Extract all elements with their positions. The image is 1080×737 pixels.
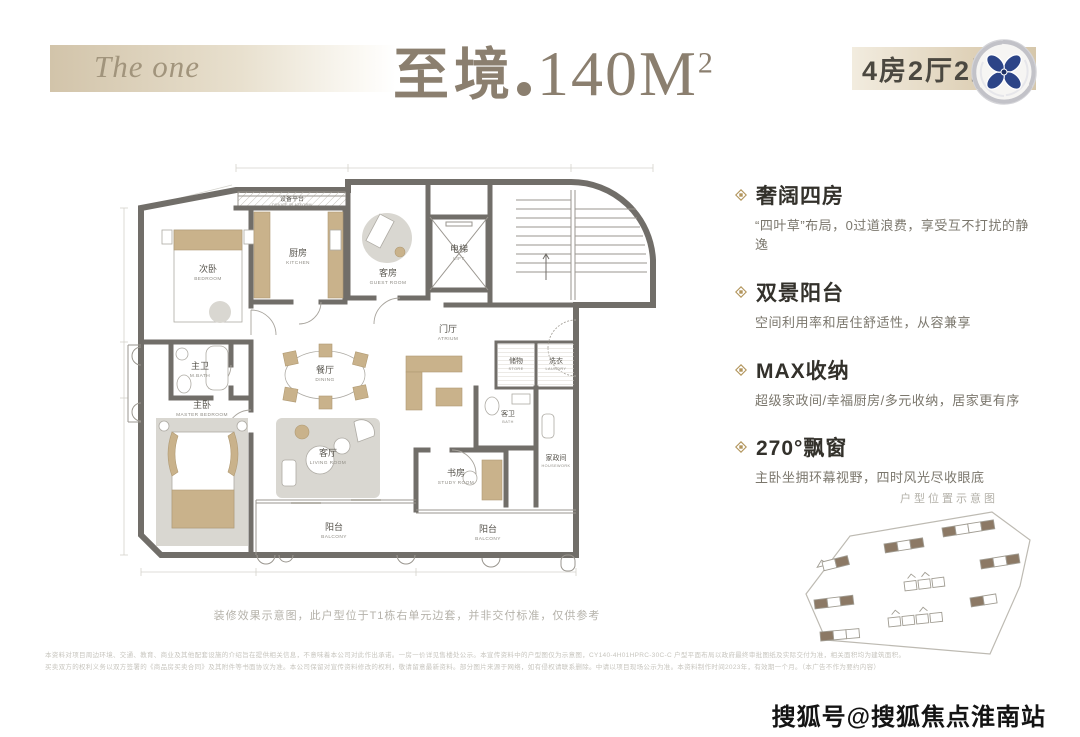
seal-dot-icon	[517, 82, 531, 96]
title-area-number: 140M	[537, 38, 698, 109]
room-label-en: DEVICE PLATFORM	[272, 203, 312, 207]
site-plan: 户型位置示意图	[792, 488, 1044, 660]
room-label: 客厅	[319, 447, 337, 458]
room-label-en: DINING	[315, 377, 334, 383]
diamond-bullet-icon	[735, 188, 747, 206]
page-title: 至境 140M2	[393, 24, 713, 104]
title-cn: 至境	[393, 48, 515, 104]
room-label-en: HOUSEWORK	[542, 464, 571, 468]
room-label: 家政间	[546, 453, 567, 462]
disclaimer-line-1: 本资料对项目周边环境、交通、教育、商业及其他配套设施的介绍旨在提供相关信息，不意…	[45, 650, 1041, 662]
feature-desc: 主卧坐拥环幕视野，四时风光尽收眼底	[755, 469, 1041, 488]
brand-logotype: The one	[94, 49, 200, 85]
room-label: 厨房	[289, 247, 307, 258]
feature-list: 奢阔四房 “四叶草”布局，0过道浪费，享受互不打扰的静逸 双景阳台 空间利用率和…	[735, 184, 1041, 514]
room-label: 电梯	[450, 243, 468, 254]
room-label: 阳台	[479, 523, 497, 534]
feature-title: 270°飘窗	[756, 436, 847, 462]
room-label: 阳台	[325, 521, 343, 532]
room-label-en: STUDY ROOM	[438, 480, 474, 486]
feature-desc: “四叶草”布局，0过道浪费，享受互不打扰的静逸	[755, 217, 1041, 255]
brand-banner: The one	[50, 45, 396, 92]
room-label-en: GUEST ROOM	[370, 280, 407, 286]
diamond-bullet-icon	[735, 440, 747, 458]
feature-title: 双景阳台	[756, 281, 844, 307]
room-label: 门厅	[439, 323, 457, 334]
room-label-en: LIVING ROOM	[310, 460, 346, 466]
plan-note: 装修效果示意图，此户型位于T1栋右单元边套，并非交付标准，仅供参考	[116, 607, 698, 623]
room-label-en: M.BATH	[190, 373, 210, 379]
room-label-en: BALCONY	[321, 534, 347, 540]
feature-item-4: 270°飘窗 主卧坐拥环幕视野，四时风光尽收眼底	[735, 436, 1041, 488]
feature-item-2: 双景阳台 空间利用率和居住舒适性，从容兼享	[735, 281, 1041, 333]
room-label: 书房	[447, 467, 465, 478]
feature-item-1: 奢阔四房 “四叶草”布局，0过道浪费，享受互不打扰的静逸	[735, 184, 1041, 255]
clover-logo-icon	[968, 36, 1040, 108]
room-label: 主卧	[193, 399, 211, 410]
room-label-en: BEDROOM	[194, 276, 222, 282]
title-area-sup: 2	[698, 47, 713, 80]
feature-title: MAX收纳	[756, 359, 850, 385]
room-label: 客卫	[501, 409, 515, 418]
diamond-bullet-icon	[735, 285, 747, 303]
floor-plan: 设备平台 DEVICE PLATFORM 次卧 BEDROOM 厨房 KITCH…	[116, 160, 698, 590]
room-label: 设备平台	[280, 195, 304, 203]
room-label-en: KITCHEN	[286, 260, 310, 266]
title-area: 140M2	[537, 45, 713, 104]
feature-desc: 超级家政间/幸福厨房/多元收纳，居家更有序	[755, 392, 1041, 411]
feature-item-3: MAX收纳 超级家政间/幸福厨房/多元收纳，居家更有序	[735, 359, 1041, 411]
room-label: 次卧	[199, 263, 217, 274]
room-label-en: MASTER BEDROOM	[176, 412, 228, 418]
room-label-en: STORE	[508, 367, 523, 371]
watermark: 搜狐号@搜狐焦点淮南站	[772, 697, 1046, 732]
room-label-en: ATRIUM	[438, 336, 458, 342]
disclaimer-line-2: 买卖双方的权利义务以双方签署的《商品房买卖合同》及其附件等书面协议为准。本公司保…	[45, 662, 1041, 674]
room-label-en: LIFT	[453, 256, 464, 262]
room-label: 主卫	[191, 360, 209, 371]
poster-page: The one 至境 140M2 4房2厅2卫	[0, 0, 1080, 737]
room-label: 餐厅	[316, 364, 334, 375]
furniture	[156, 212, 574, 546]
room-label-en: LAUNDRY	[546, 367, 567, 371]
feature-desc: 空间利用率和居住舒适性，从容兼享	[755, 314, 1041, 333]
room-label: 储物	[509, 356, 523, 365]
room-label-en: BALCONY	[475, 536, 501, 542]
room-label-en: BATH	[502, 420, 513, 424]
room-label: 客房	[379, 267, 397, 278]
site-plan-map	[792, 502, 1044, 660]
room-label: 洗衣	[549, 356, 563, 365]
diamond-bullet-icon	[735, 363, 747, 381]
legal-disclaimer: 本资料对项目周边环境、交通、教育、商业及其他配套设施的介绍旨在提供相关信息，不意…	[45, 650, 1041, 673]
feature-title: 奢阔四房	[756, 184, 844, 210]
